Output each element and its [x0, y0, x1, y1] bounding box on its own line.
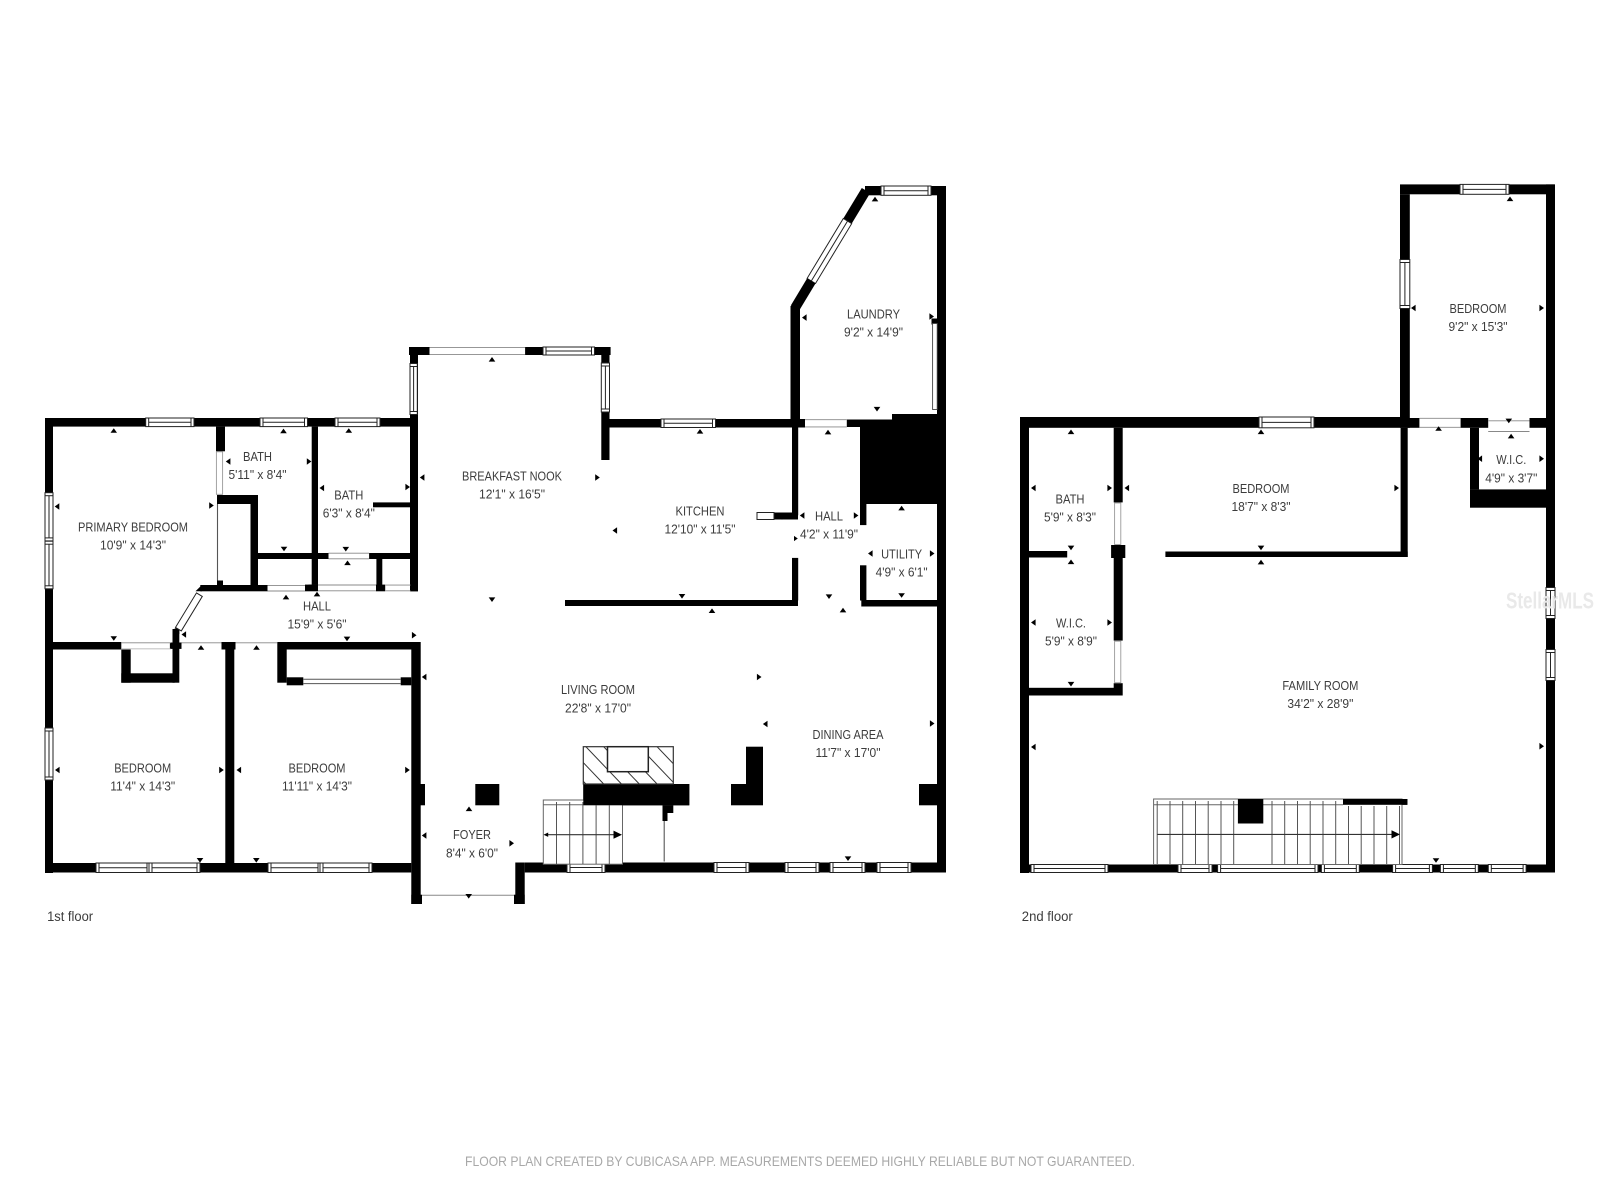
svg-text:18'7" x 8'3": 18'7" x 8'3"	[1232, 499, 1291, 514]
svg-text:StellarMLS: StellarMLS	[1506, 588, 1594, 614]
svg-text:BATH: BATH	[1056, 491, 1085, 506]
svg-text:4'9" x 3'7": 4'9" x 3'7"	[1485, 470, 1537, 485]
svg-text:11'4" x 14'3": 11'4" x 14'3"	[110, 779, 175, 794]
svg-text:W.I.C.: W.I.C.	[1496, 452, 1526, 467]
svg-text:BEDROOM: BEDROOM	[1450, 301, 1507, 316]
svg-text:FLOOR PLAN CREATED BY CUBICASA: FLOOR PLAN CREATED BY CUBICASA APP. MEAS…	[465, 1153, 1135, 1169]
svg-text:11'7" x 17'0": 11'7" x 17'0"	[816, 745, 881, 760]
svg-text:12'10" x 11'5": 12'10" x 11'5"	[665, 522, 736, 537]
svg-text:6'3" x 8'4": 6'3" x 8'4"	[323, 506, 375, 521]
svg-text:FOYER: FOYER	[453, 827, 491, 842]
svg-text:2nd floor: 2nd floor	[1022, 909, 1074, 924]
svg-text:DINING AREA: DINING AREA	[813, 727, 884, 742]
svg-text:BEDROOM: BEDROOM	[1233, 481, 1290, 496]
svg-text:4'9" x 6'1": 4'9" x 6'1"	[876, 565, 928, 580]
svg-text:1st floor: 1st floor	[47, 909, 94, 924]
svg-text:12'1" x 16'5": 12'1" x 16'5"	[479, 487, 545, 502]
svg-text:5'11" x 8'4": 5'11" x 8'4"	[229, 467, 287, 482]
svg-text:BEDROOM: BEDROOM	[289, 760, 346, 775]
svg-text:8'4" x 6'0": 8'4" x 6'0"	[446, 845, 498, 860]
svg-text:22'8" x 17'0": 22'8" x 17'0"	[565, 700, 631, 715]
svg-text:HALL: HALL	[815, 508, 843, 523]
svg-text:UTILITY: UTILITY	[881, 546, 922, 561]
svg-text:PRIMARY BEDROOM: PRIMARY BEDROOM	[78, 519, 188, 534]
svg-text:9'2" x 14'9": 9'2" x 14'9"	[844, 325, 903, 340]
svg-text:4'2" x 11'9": 4'2" x 11'9"	[800, 527, 858, 542]
svg-text:HALL: HALL	[303, 598, 331, 613]
svg-text:15'9" x 5'6": 15'9" x 5'6"	[288, 617, 347, 632]
svg-text:KITCHEN: KITCHEN	[676, 503, 725, 518]
svg-text:BEDROOM: BEDROOM	[114, 760, 171, 775]
svg-text:BATH: BATH	[334, 487, 363, 502]
svg-text:11'11" x 14'3": 11'11" x 14'3"	[282, 779, 352, 794]
svg-text:LAUNDRY: LAUNDRY	[847, 306, 900, 321]
svg-text:9'2" x 15'3": 9'2" x 15'3"	[1449, 319, 1508, 334]
svg-text:5'9" x 8'3": 5'9" x 8'3"	[1044, 510, 1096, 525]
svg-text:FAMILY ROOM: FAMILY ROOM	[1282, 678, 1358, 693]
svg-text:BATH: BATH	[243, 449, 272, 464]
svg-text:10'9" x 14'3": 10'9" x 14'3"	[100, 538, 166, 553]
svg-text:BREAKFAST NOOK: BREAKFAST NOOK	[462, 468, 562, 483]
svg-text:W.I.C.: W.I.C.	[1056, 615, 1086, 630]
svg-text:LIVING ROOM: LIVING ROOM	[561, 682, 635, 697]
svg-text:5'9" x 8'9": 5'9" x 8'9"	[1045, 633, 1097, 648]
svg-text:34'2" x 28'9": 34'2" x 28'9"	[1287, 696, 1353, 711]
